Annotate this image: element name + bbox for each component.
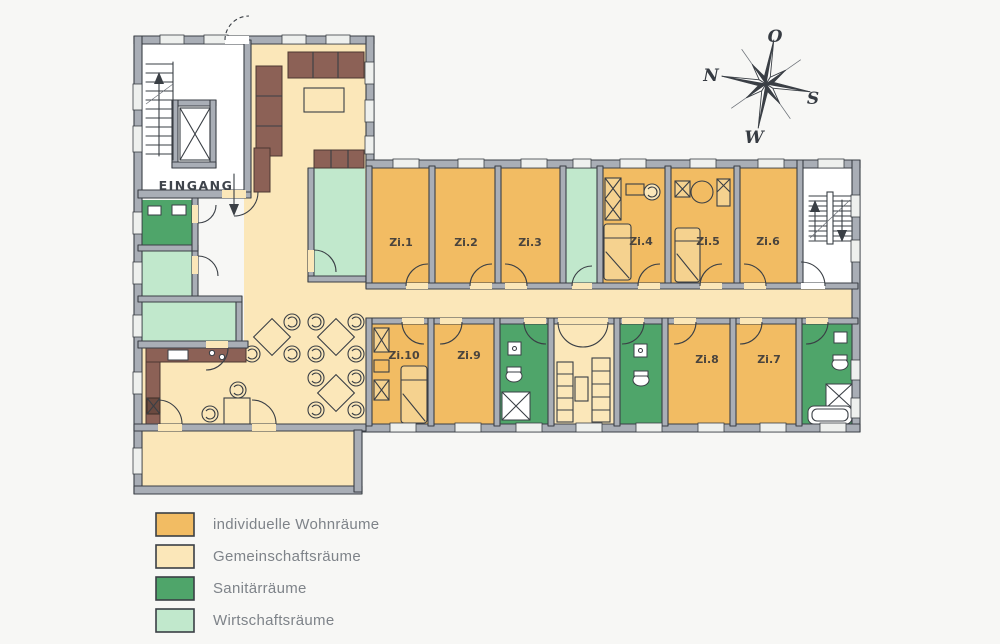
room-label-zi7: Zi.7: [757, 353, 781, 366]
floor-plan-drawing: Zi.1 Zi.2 Zi.3 Zi.4 Zi.5 Zi.6 Zi.7 Zi.8 …: [0, 0, 1000, 644]
room-label-zi3: Zi.3: [518, 236, 542, 249]
legend-label-sanitary: Sanitärräume: [213, 580, 307, 597]
legend-item-individual: individuelle Wohnräume: [155, 512, 379, 537]
legend-item-community: Gemeinschaftsräume: [155, 544, 379, 569]
floor-plan-page: Zi.1 Zi.2 Zi.3 Zi.4 Zi.5 Zi.6 Zi.7 Zi.8 …: [0, 0, 1000, 644]
room-label-zi8: Zi.8: [695, 353, 719, 366]
legend-label-individual: individuelle Wohnräume: [213, 516, 379, 533]
compass-west-label: W: [744, 128, 765, 148]
legend-label-utility: Wirtschaftsräume: [213, 612, 335, 629]
legend: individuelle Wohnräume Gemeinschaftsräum…: [155, 512, 379, 633]
sofa-small: [314, 150, 364, 168]
room-label-zi1: Zi.1: [389, 236, 413, 249]
compass-east-label: O: [768, 27, 783, 47]
legend-swatch-sanitary: [155, 576, 195, 601]
compass-rose: O N S W: [702, 27, 819, 148]
legend-swatch-community: [155, 544, 195, 569]
sofa-top: [288, 52, 364, 78]
room-label-zi9: Zi.9: [457, 349, 481, 362]
utility-room-mid-floor: [565, 168, 598, 288]
sofa-left: [256, 66, 282, 156]
legend-label-community: Gemeinschaftsräume: [213, 548, 361, 565]
room-label-zi10: Zi.10: [388, 349, 420, 362]
utility-room-wing-floor: [311, 168, 365, 278]
coffee-table: [304, 88, 344, 112]
room-label-zi2: Zi.2: [454, 236, 478, 249]
entrance-floor: [138, 38, 251, 196]
room-label-zi5: Zi.5: [696, 235, 720, 248]
cabinet: [254, 148, 270, 192]
room-label-zi4: Zi.4: [629, 235, 653, 248]
lower-hall-floor: [138, 430, 360, 490]
compass-south-label: S: [807, 89, 819, 109]
legend-swatch-utility: [155, 608, 195, 633]
legend-item-utility: Wirtschaftsräume: [155, 608, 379, 633]
room-label-zi6: Zi.6: [756, 235, 780, 248]
legend-item-sanitary: Sanitärräume: [155, 576, 379, 601]
legend-swatch-individual: [155, 512, 195, 537]
entrance-label: EINGANG: [159, 178, 234, 193]
compass-north-label: N: [702, 66, 720, 86]
